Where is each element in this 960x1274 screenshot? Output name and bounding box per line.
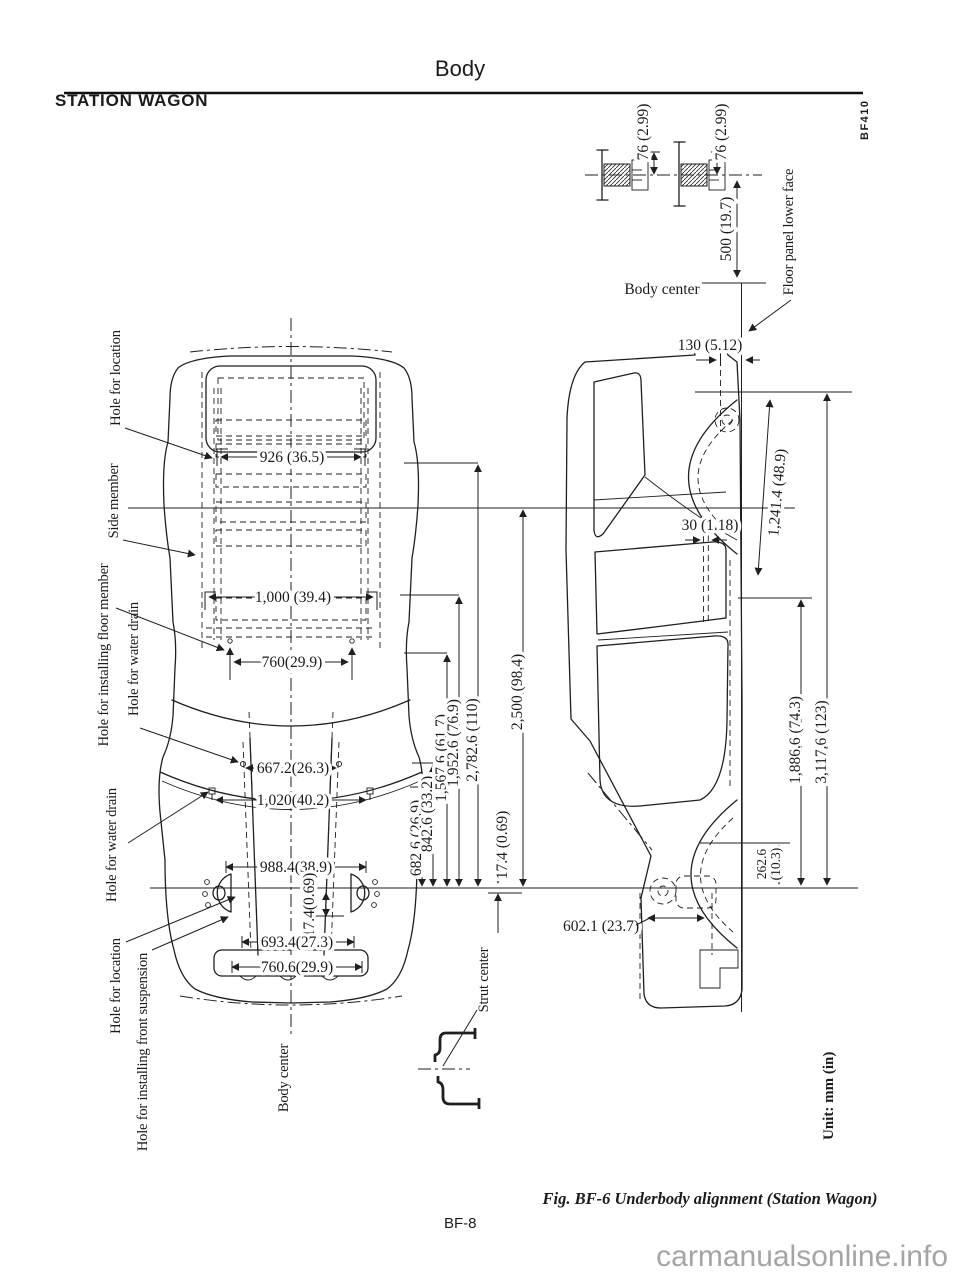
dim-174-side: 17.4 (0.69) <box>494 811 511 879</box>
dim-2500: 2,500 (98.4) <box>509 654 526 730</box>
floor-panel-detail-diagram: 76 (2.99) 76 (2.99) 500 (19.7) Body cent… <box>585 104 797 331</box>
section-title: STATION WAGON <box>55 91 208 110</box>
dim-130: 130 (5.12) <box>678 337 743 354</box>
dim-262-line1: 262.6 <box>754 849 769 880</box>
hole-water-drain-front-label: Hole for water drain <box>104 787 120 902</box>
dim-3117: 3,117.6 (123) <box>813 700 830 783</box>
hole-water-drain-rear-label: Hole for water drain <box>126 601 142 716</box>
dim-693: 693.4(27.3) <box>261 934 333 951</box>
detail-body-center-label: Body center <box>624 281 700 298</box>
dim-1000: 1,000 (39.4) <box>255 589 331 606</box>
dim-1886: 1,886.6 (74.3) <box>787 696 804 784</box>
floor-panel-leader <box>749 300 791 331</box>
hole-floor-member-label: Hole for installing floor member <box>96 563 112 746</box>
strut-tower-right <box>351 874 379 912</box>
dim-30: 30 (1.18) <box>682 517 739 534</box>
dim-76-left: 76 (2.99) <box>635 104 652 161</box>
page-title: Body <box>435 56 485 81</box>
hole-for-location-front-label: Hole for location <box>108 937 124 1034</box>
unit-note: Unit: mm (in) <box>821 1052 837 1140</box>
reference-lines <box>128 283 858 1035</box>
dim-667: 667.2(26.3) <box>257 760 329 777</box>
strut-center-label: Strut center <box>476 947 492 1012</box>
dim-174-top: 17.4(0.69) <box>301 873 318 938</box>
figure-caption: Fig. BF-6 Underbody alignment (Station W… <box>542 1189 878 1208</box>
page-number: BF-8 <box>444 1215 477 1232</box>
watermark: carmanualsonline.info <box>656 1240 948 1273</box>
dim-7606: 760.6(29.9) <box>261 959 333 976</box>
manual-page: Body STATION WAGON BF410 76 ( <box>0 0 960 1274</box>
strut-center-detail: Strut center <box>418 947 492 1109</box>
dim-760: 760(29.9) <box>262 654 323 671</box>
top-view-dimensions: 926 (36.5) 1,000 (39.4) 760(29.9) 667.2(… <box>205 449 526 976</box>
dim-1020: 1,020(40.2) <box>257 792 329 809</box>
dim-988: 988.4(38.9) <box>260 859 332 876</box>
side-view-dimensions: 130 (5.12) 30 (1.18) 1,241.4 (48.9) 1,88… <box>563 337 830 935</box>
dim-76-right: 76 (2.99) <box>713 104 730 161</box>
dim-500: 500 (19.7) <box>718 197 735 262</box>
dim-262-line2: (10.3) <box>768 848 783 881</box>
dim-1952: 1,952.6 (76.9) <box>445 699 462 787</box>
top-view-body-center-label: Body center <box>276 1044 292 1113</box>
strut-tower-left <box>203 874 231 912</box>
dim-2782: 2,782.6 (110) <box>464 698 481 781</box>
side-member-label: Side member <box>106 463 122 538</box>
dim-1241: 1,241.4 (48.9) <box>765 448 790 537</box>
hole-front-suspension-label: Hole for installing front suspension <box>135 952 151 1151</box>
dim-926: 926 (36.5) <box>260 449 325 466</box>
hole-for-location-rear-label: Hole for location <box>108 329 124 426</box>
dim-602: 602.1 (23.7) <box>563 918 639 935</box>
figure-code: BF410 <box>859 99 871 140</box>
side-view-body-art <box>566 346 742 1008</box>
floor-panel-lower-face-label: Floor panel lower face <box>781 169 797 295</box>
underbody-alignment-figure: Body STATION WAGON BF410 76 ( <box>0 0 960 1274</box>
